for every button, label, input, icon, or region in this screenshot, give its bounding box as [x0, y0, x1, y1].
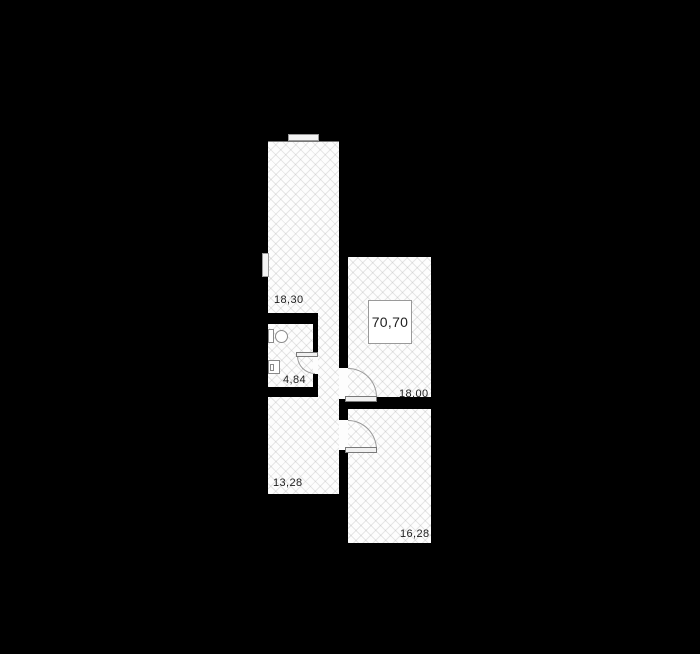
room-area-label-16-28: 16,28	[400, 528, 430, 540]
sink-detail-icon	[270, 364, 274, 371]
toilet-tank-icon	[268, 329, 274, 343]
room-area-label-18-30: 18,30	[274, 294, 304, 306]
room-area-label-18-00: 18,00	[399, 388, 429, 400]
doorway-passage	[339, 368, 348, 399]
door-leaf-icon	[345, 396, 377, 402]
room-area-label-4-84: 4,84	[283, 374, 306, 386]
room-area-label-13-28: 13,28	[273, 477, 303, 489]
total-area-label: 70,70	[372, 314, 409, 330]
door-leaf-icon	[345, 447, 377, 453]
window-icon	[262, 253, 269, 277]
floor-plan: 70,70 18,30 4,84 18,00 13,28 16,28	[0, 0, 700, 654]
window-icon	[288, 134, 319, 141]
door-leaf-icon	[296, 352, 318, 357]
toilet-bowl-icon	[275, 330, 288, 343]
sink-icon	[268, 360, 280, 374]
doorway-passage	[339, 420, 348, 450]
total-area-box: 70,70	[368, 300, 412, 344]
